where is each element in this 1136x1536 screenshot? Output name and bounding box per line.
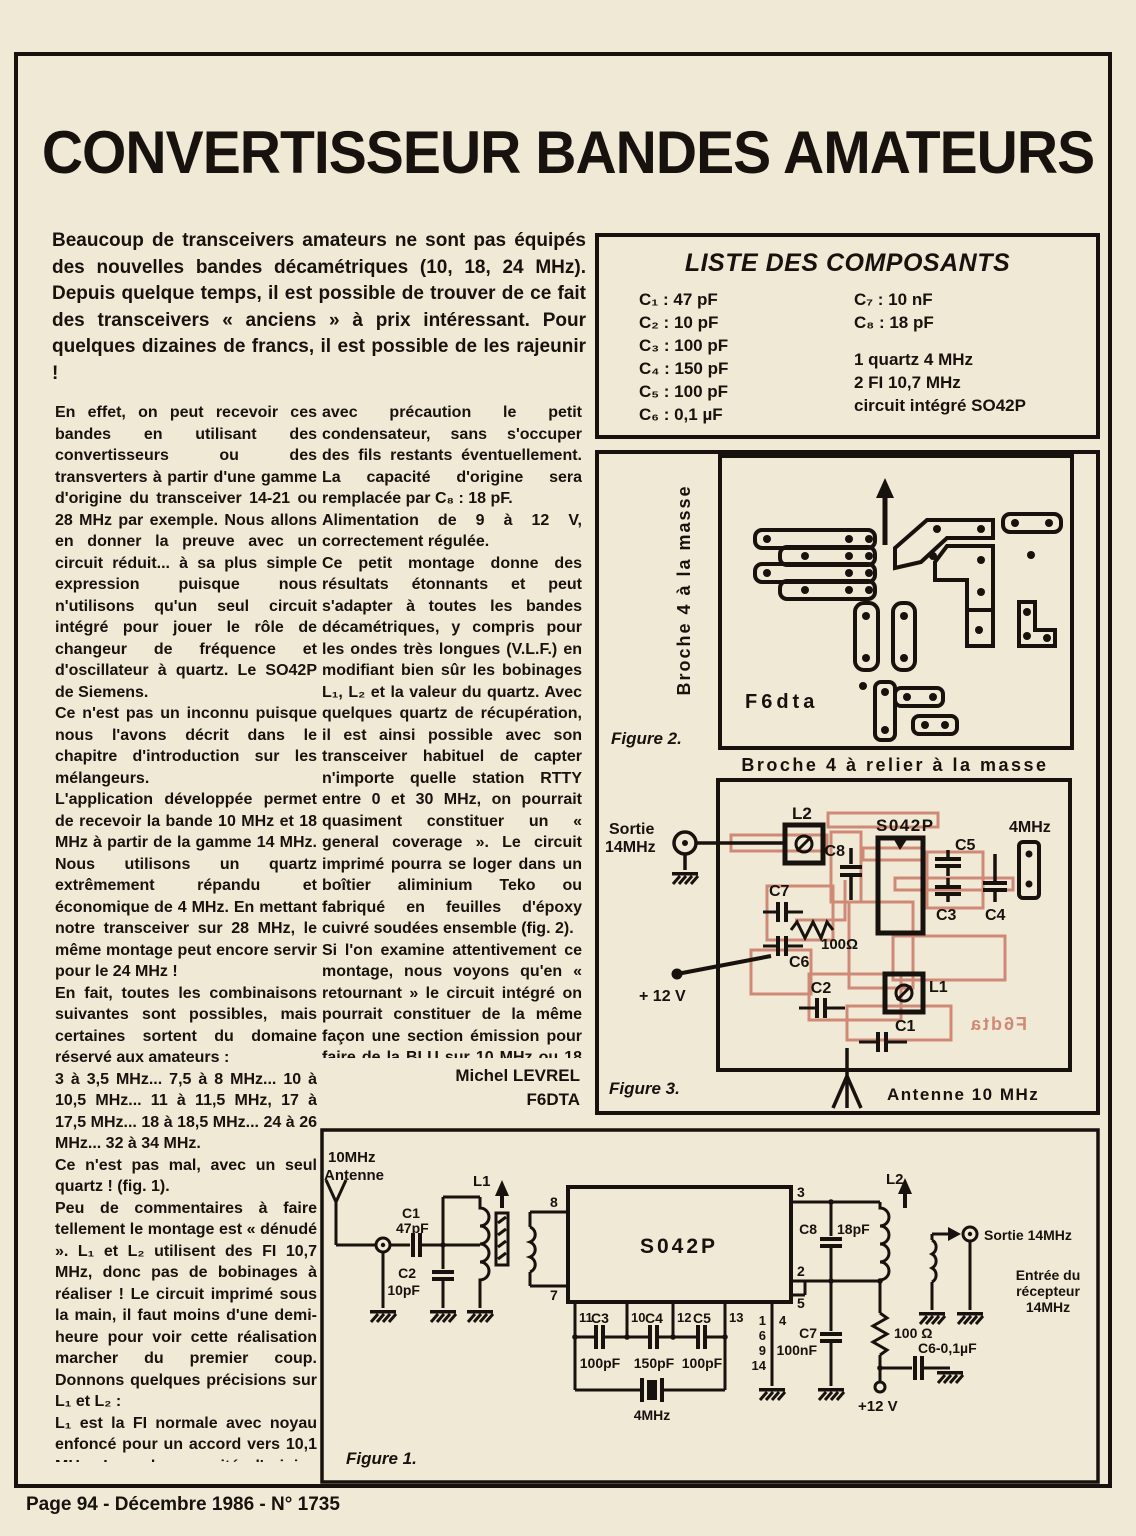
fig1-pin7: 7 <box>550 1287 558 1303</box>
fig1-c8-value: 18pF <box>837 1221 870 1237</box>
fig1-pin8: 8 <box>550 1194 558 1210</box>
footer-text: Page 94 - Décembre 1986 - N° 1735 <box>26 1494 340 1516</box>
fig1-pin3: 3 <box>797 1184 805 1200</box>
text-column-left: En effet, on peut recevoir ces bandes en… <box>55 402 317 1462</box>
component-item: C₈ : 18 pF <box>854 311 1026 334</box>
paragraph: En fait, toutes les combinaisons suivant… <box>55 983 317 1069</box>
fig3-r100-label: 100Ω <box>821 936 858 953</box>
component-item: C₂ : 10 pF <box>639 311 854 334</box>
fig1-pin6: 6 <box>759 1328 766 1343</box>
fig1-c3-label: C3 <box>591 1310 609 1326</box>
component-item: C₁ : 47 pF <box>639 288 854 311</box>
component-item: C₆ : 0,1 µF <box>639 403 854 426</box>
components-list-box: LISTE DES COMPOSANTS C₁ : 47 pF C₂ : 10 … <box>595 233 1100 439</box>
fig1-pin9: 9 <box>759 1343 766 1358</box>
fig3-c2-label: C2 <box>811 980 832 997</box>
fig3-sortie-label-2: 14MHz <box>605 839 656 856</box>
paragraph: L'application développée permet de recev… <box>55 789 317 983</box>
paragraph: Ce n'est pas mal, avec un seul quartz ! … <box>55 1155 317 1198</box>
fig3-mirrored-label: F6dta <box>969 1014 1027 1034</box>
paragraph: En effet, on peut recevoir ces bandes en… <box>55 402 317 703</box>
components-list-title: LISTE DES COMPOSANTS <box>599 249 1096 278</box>
fig1-c4-label: C4 <box>645 1310 663 1326</box>
figures-panel-drawing: Broche 4 à la masse <box>595 450 1100 1115</box>
text-column-middle: avec précaution le petit condensateur, s… <box>322 402 582 1058</box>
fig1-pin2: 2 <box>797 1263 805 1279</box>
paragraph: L₁ est la FI normale avec noyau enfoncé … <box>55 1413 317 1463</box>
fig1-l2-label: L2 <box>886 1171 904 1188</box>
fig1-pin13: 13 <box>729 1310 743 1325</box>
paragraph: Peu de commentaires à faire tellement le… <box>55 1198 317 1413</box>
fig3-caption: Figure 3. <box>609 1079 680 1098</box>
author-signature: Michel LEVREL F6DTA <box>322 1064 580 1112</box>
fig3-l2-label: L2 <box>792 804 812 823</box>
components-column-right: C₇ : 10 nF C₈ : 18 pF 1 quartz 4 MHz 2 F… <box>854 288 1026 426</box>
fig1-c6-label: C6-0,1µF <box>918 1340 977 1356</box>
fig3-c6-label: C6 <box>789 954 810 971</box>
fig3-antenne-label: Antenne 10 MHz <box>887 1085 1039 1104</box>
fig3-l1-label: L1 <box>929 979 948 996</box>
fig3-xtal-label: 4MHz <box>1009 819 1051 836</box>
fig1-c2-value: 10pF <box>387 1282 420 1298</box>
fig3-c7-label: C7 <box>769 883 790 900</box>
fig3-plus12-label: + 12 V <box>639 988 686 1005</box>
article-title: CONVERTISSEUR BANDES AMATEURS <box>28 118 1107 187</box>
component-item: circuit intégré SO42P <box>854 394 1026 417</box>
fig1-ant-label-1: 10MHz <box>328 1149 376 1166</box>
fig2-board-label: F6dta <box>745 691 818 713</box>
fig1-pin14: 14 <box>752 1358 767 1373</box>
fig3-c1-label: C1 <box>895 1018 916 1035</box>
fig2-caption: Figure 2. <box>611 729 682 748</box>
fig1-caption: Figure 1. <box>346 1449 417 1468</box>
fig2-board: F6dta <box>720 456 1072 748</box>
fig1-pin12: 12 <box>677 1310 691 1325</box>
component-item: C₄ : 150 pF <box>639 357 854 380</box>
figures-panel: Broche 4 à la masse <box>595 450 1100 1115</box>
paragraph: Alimentation de 9 à 12 V, correctement r… <box>322 510 582 553</box>
fig1-pin10: 10 <box>631 1310 645 1325</box>
author-name: Michel LEVREL <box>322 1064 580 1088</box>
fig1-r100-label: 100 Ω <box>894 1325 932 1341</box>
fig3-ic-label: S042P <box>876 816 935 835</box>
fig3-c4-label: C4 <box>985 907 1006 924</box>
fig1-border <box>322 1130 1098 1482</box>
component-item: C₃ : 100 pF <box>639 334 854 357</box>
fig1-entree-label-3: 14MHz <box>1026 1299 1070 1315</box>
fig3-board: F6dta <box>605 780 1070 1108</box>
component-item: 2 FI 10,7 MHz <box>854 371 1026 394</box>
fig1-sortie-label: Sortie 14MHz <box>984 1227 1072 1243</box>
fig1-ant-label-2: Antenne <box>324 1167 384 1184</box>
fig1-pin5: 5 <box>797 1295 805 1311</box>
paragraph: Ce n'est pas un inconnu puisque nous l'a… <box>55 703 317 789</box>
fig1-pin1: 1 <box>759 1313 766 1328</box>
fig1-ic-label: S042P <box>640 1235 718 1258</box>
component-item: C₅ : 100 pF <box>639 380 854 403</box>
fig1-entree-label-2: récepteur <box>1016 1283 1080 1299</box>
fig1-schematic: 10MHz Antenne C1 47pF C2 10pF L1 8 7 S04… <box>320 1128 1100 1485</box>
fig1-pin4: 4 <box>779 1313 787 1328</box>
fig1-c3-value: 100pF <box>580 1355 621 1371</box>
fig1-c8-label: C8 <box>799 1221 817 1237</box>
component-item: 1 quartz 4 MHz <box>854 348 1026 371</box>
author-callsign: F6DTA <box>322 1088 580 1112</box>
fig1-c5-label: C5 <box>693 1310 711 1326</box>
figure1-panel: 10MHz Antenne C1 47pF C2 10pF L1 8 7 S04… <box>320 1128 1100 1485</box>
fig1-c7-label: C7 <box>799 1325 817 1341</box>
intro-paragraph: Beaucoup de transceivers amateurs ne son… <box>52 228 586 388</box>
fig1-c5-value: 100pF <box>682 1355 723 1371</box>
paragraph: avec précaution le petit condensateur, s… <box>322 402 582 510</box>
component-item: C₇ : 10 nF <box>854 288 1026 311</box>
fig1-c1-value: 47pF <box>396 1220 429 1236</box>
fig1-c4-value: 150pF <box>634 1355 675 1371</box>
paragraph: 3 à 3,5 MHz... 7,5 à 8 MHz... 10 à 10,5 … <box>55 1069 317 1155</box>
fig1-c7-value: 100nF <box>777 1342 818 1358</box>
fig1-c2-label: C2 <box>398 1265 416 1281</box>
paragraph: Si l'on examine attentivement ce montage… <box>322 940 582 1059</box>
fig1-plus12-label: +12 V <box>858 1398 898 1415</box>
fig1-l1-label: L1 <box>473 1173 491 1190</box>
paragraph: Ce petit montage donne des résultats éto… <box>322 553 582 940</box>
fig2-bottom-label: Broche 4 à relier à la masse <box>741 755 1048 775</box>
fig3-c8-label: C8 <box>825 843 846 860</box>
magazine-page: CONVERTISSEUR BANDES AMATEURS Beaucoup d… <box>0 0 1136 1536</box>
fig1-c1-label: C1 <box>402 1205 420 1221</box>
fig3-c3-label: C3 <box>936 907 957 924</box>
fig1-xtal-label: 4MHz <box>634 1407 671 1423</box>
fig3-c5-label: C5 <box>955 837 976 854</box>
fig2-vertical-label: Broche 4 à la masse <box>674 484 694 695</box>
components-column-left: C₁ : 47 pF C₂ : 10 pF C₃ : 100 pF C₄ : 1… <box>639 288 854 426</box>
fig3-sortie-label-1: Sortie <box>609 821 654 838</box>
fig1-entree-label-1: Entrée du <box>1016 1267 1081 1283</box>
